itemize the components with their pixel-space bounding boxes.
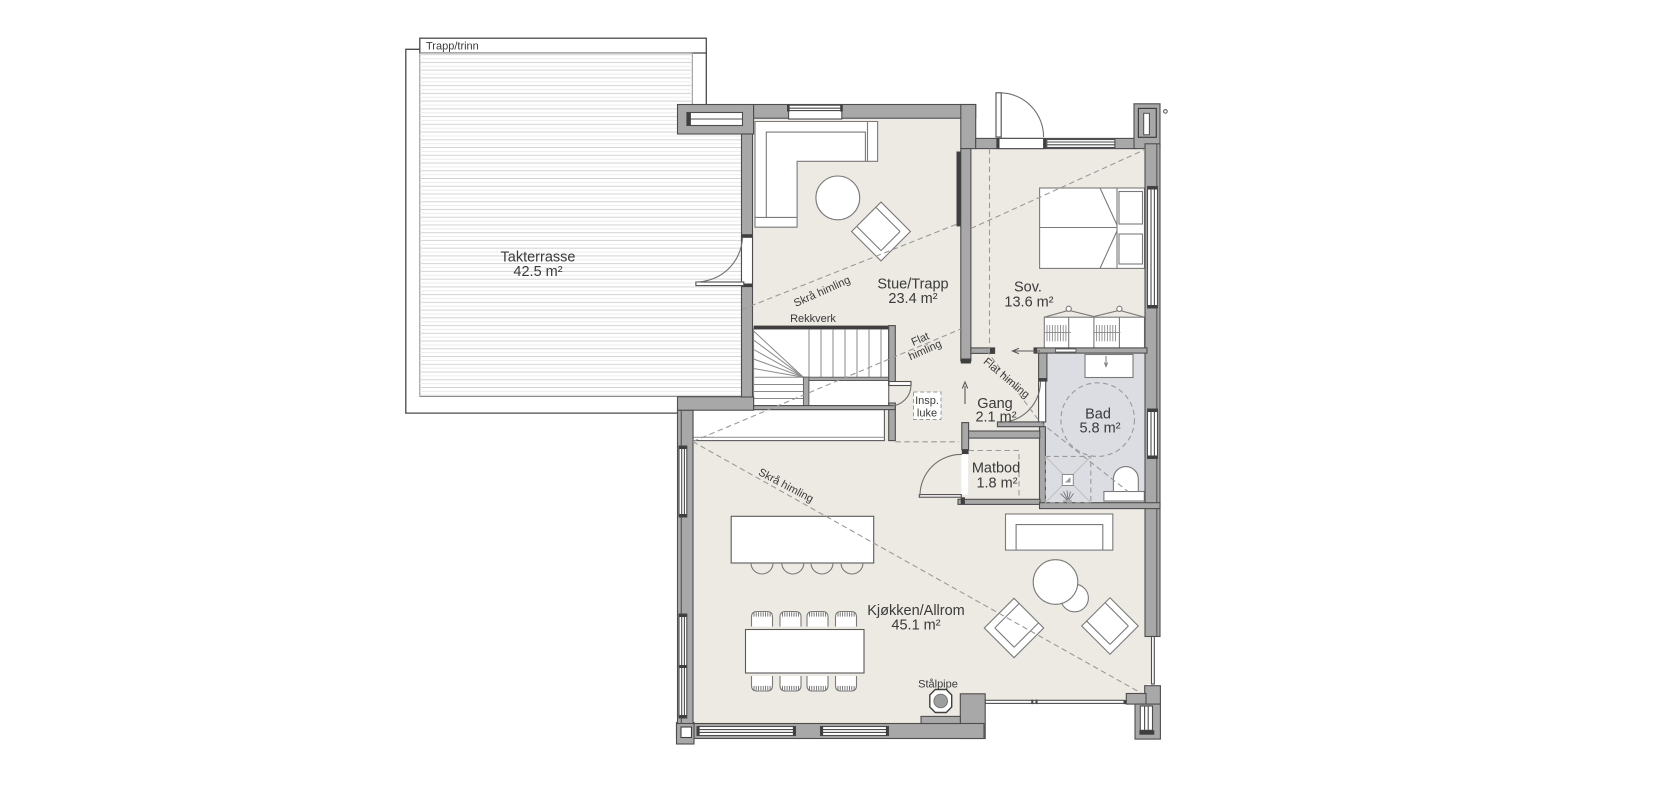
svg-text:Sov.: Sov. [1014, 280, 1042, 296]
svg-text:Insp.: Insp. [915, 395, 939, 407]
svg-text:45.1 m²: 45.1 m² [891, 618, 940, 634]
svg-text:Matbod: Matbod [972, 461, 1020, 477]
svg-text:5.8 m²: 5.8 m² [1079, 421, 1120, 437]
svg-text:42.5 m²: 42.5 m² [513, 264, 562, 280]
svg-text:luke: luke [917, 408, 937, 420]
svg-text:1.8 m²: 1.8 m² [976, 476, 1017, 492]
svg-text:2.1 m²: 2.1 m² [975, 410, 1016, 426]
svg-text:Rekkverk: Rekkverk [790, 313, 836, 325]
svg-text:Stålpipe: Stålpipe [918, 679, 958, 691]
svg-text:23.4 m²: 23.4 m² [888, 291, 937, 307]
svg-text:Trapp/trinn: Trapp/trinn [426, 41, 479, 53]
svg-text:13.6 m²: 13.6 m² [1004, 295, 1053, 311]
